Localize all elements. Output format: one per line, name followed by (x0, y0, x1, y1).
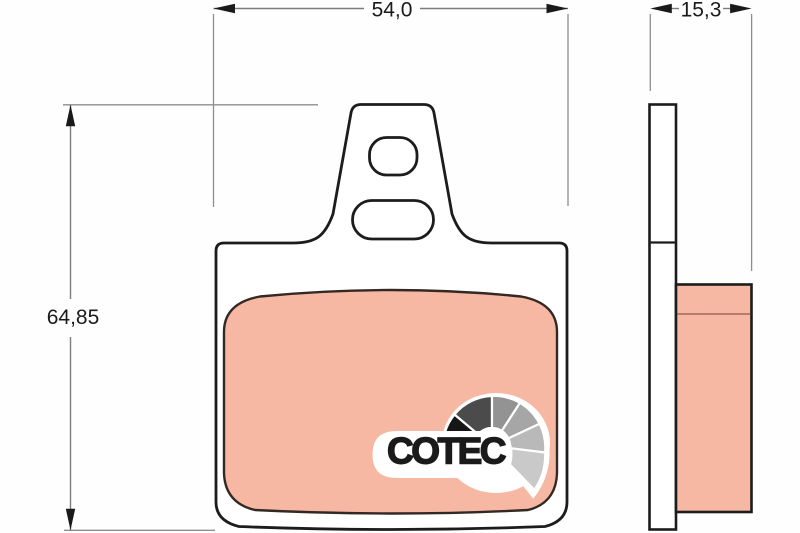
svg-text:15,3: 15,3 (681, 0, 722, 22)
svg-text:COTEC: COTEC (387, 431, 506, 472)
svg-text:54,0: 54,0 (372, 0, 413, 22)
svg-text:64,85: 64,85 (47, 306, 100, 329)
